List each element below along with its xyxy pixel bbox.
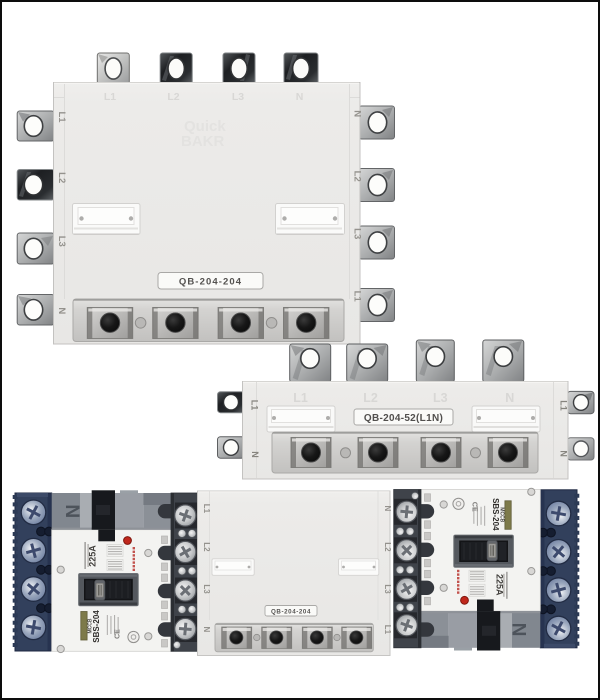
svg-text:L1: L1: [352, 291, 363, 303]
svg-text:L2: L2: [167, 91, 179, 103]
svg-text:L1: L1: [202, 504, 211, 514]
svg-text:L3: L3: [56, 236, 67, 247]
svg-text:L1: L1: [56, 111, 67, 123]
svg-text:L2: L2: [363, 391, 378, 405]
svg-text:N: N: [61, 504, 82, 518]
svg-text:L2: L2: [383, 542, 392, 552]
svg-text:L3: L3: [352, 228, 363, 239]
svg-text:N: N: [559, 450, 569, 457]
svg-text:L3: L3: [433, 391, 448, 405]
svg-text:QB-204-204: QB-204-204: [179, 277, 242, 288]
svg-text:N: N: [352, 110, 363, 117]
svg-text:L3: L3: [202, 584, 211, 594]
svg-text:N: N: [296, 91, 304, 103]
svg-text:L2: L2: [352, 171, 363, 182]
svg-text:CE: CE: [115, 629, 122, 639]
svg-text:QB-204-204: QB-204-204: [271, 608, 311, 615]
svg-text:SBS-204: SBS-204: [92, 610, 101, 643]
svg-text:BAKR: BAKR: [181, 133, 224, 150]
svg-text:L1: L1: [250, 400, 260, 411]
svg-text:225A: 225A: [88, 545, 98, 567]
svg-text:L2: L2: [56, 172, 67, 183]
svg-text:L1: L1: [104, 91, 116, 103]
svg-text:N: N: [56, 307, 67, 314]
svg-text:N: N: [505, 391, 514, 405]
svg-text:N: N: [202, 627, 211, 633]
svg-text:L2: L2: [202, 542, 211, 552]
svg-text:L1: L1: [293, 391, 308, 405]
svg-text:L1: L1: [559, 400, 569, 411]
svg-text:L3: L3: [383, 584, 392, 594]
svg-text:N: N: [383, 506, 392, 512]
svg-text:N: N: [250, 451, 260, 458]
svg-text:L3: L3: [232, 91, 244, 103]
svg-text:QB-204-52(L1N): QB-204-52(L1N): [364, 413, 443, 424]
svg-text:L1: L1: [383, 625, 392, 635]
